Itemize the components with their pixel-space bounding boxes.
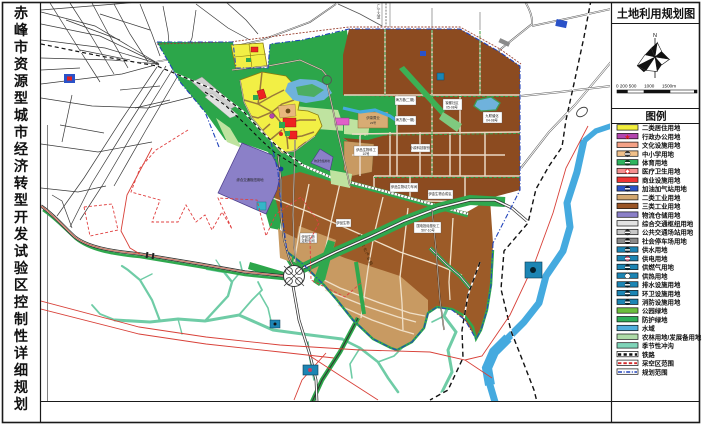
svg-text:供水用地: 供水用地 <box>641 245 668 254</box>
svg-text:广宁大道: 广宁大道 <box>376 3 381 19</box>
svg-text:公共交通场站用地: 公共交通场站用地 <box>642 228 694 237</box>
svg-text:土地利用规划图: 土地利用规划图 <box>617 7 695 21</box>
svg-text:海方基(二期): 海方基(二期) <box>396 97 415 102</box>
svg-text:淀粉车间: 淀粉车间 <box>301 238 314 243</box>
svg-text:社会停车场用地: 社会停车场用地 <box>641 237 687 246</box>
svg-text:季节性冲沟: 季节性冲沟 <box>641 341 674 350</box>
svg-text:三类工业用地: 三类工业用地 <box>642 202 681 211</box>
svg-text:伊品生物: 伊品生物 <box>336 220 350 225</box>
svg-text:图例: 图例 <box>646 110 667 123</box>
svg-text:物流仓储用地: 物流仓储用地 <box>314 159 330 163</box>
svg-text:消防设施用地: 消防设施用地 <box>642 298 681 307</box>
svg-text:0 200 500 1000 1500: 0 200 500 1000 1500m <box>616 84 676 89</box>
svg-text:供热用地: 供热用地 <box>641 271 668 280</box>
svg-text:排水设施用地: 排水设施用地 <box>642 280 681 289</box>
svg-text:伊品生物动力车间: 伊品生物动力车间 <box>391 184 417 189</box>
svg-text:中小学用地: 中小学用地 <box>642 149 675 158</box>
svg-text:镍都社区: 镍都社区 <box>445 100 459 105</box>
svg-text:规划范围: 规划范围 <box>642 367 668 376</box>
svg-text:商业设施用地: 商业设施用地 <box>642 175 681 184</box>
svg-text:防护绿地: 防护绿地 <box>642 315 668 324</box>
svg-text:507-10号: 507-10号 <box>421 228 435 233</box>
svg-text:伊金生物合成氨: 伊金生物合成氨 <box>428 191 452 196</box>
svg-text:行政办公用地: 行政办公用地 <box>641 132 681 141</box>
svg-text:体育用地: 体育用地 <box>642 158 668 167</box>
svg-text:综合交通枢纽用地: 综合交通枢纽用地 <box>642 219 694 228</box>
svg-text:二类工业用地: 二类工业用地 <box>642 193 681 202</box>
svg-text:采空区范围: 采空区范围 <box>641 359 675 368</box>
svg-text:二类居住用地: 二类居住用地 <box>642 123 681 132</box>
svg-text:铁路: 铁路 <box>642 350 655 359</box>
svg-text:水域: 水域 <box>642 324 655 333</box>
svg-text:加油加气站用地: 加油加气站用地 <box>641 184 687 193</box>
svg-text:公园绿地: 公园绿地 <box>642 306 668 315</box>
svg-text:综合交通枢纽用地: 综合交通枢纽用地 <box>236 177 264 182</box>
svg-text:环卫设施用地: 环卫设施用地 <box>642 289 681 298</box>
svg-text:供电用地: 供电用地 <box>641 254 668 263</box>
svg-text:供燃气用地: 供燃气用地 <box>641 263 675 272</box>
svg-text:海方基(一期): 海方基(一期) <box>396 117 415 122</box>
svg-text:物流仓储用地: 物流仓储用地 <box>642 210 681 219</box>
svg-text:04-08号: 04-08号 <box>486 118 498 123</box>
svg-text:医疗卫生用地: 医疗卫生用地 <box>642 167 681 176</box>
svg-text:文化设施用地: 文化设施用地 <box>642 141 681 150</box>
svg-text:伊康置业: 伊康置业 <box>366 115 380 120</box>
svg-text:农林用地/发展备用地: 农林用地/发展备用地 <box>641 332 702 341</box>
svg-text:★: ★ <box>625 134 631 141</box>
svg-text:23号: 23号 <box>370 120 376 125</box>
svg-text:05-08号: 05-08号 <box>446 105 458 110</box>
svg-text:国电投硅基化工: 国电投硅基化工 <box>416 223 440 228</box>
svg-text:N: N <box>653 33 657 39</box>
svg-text:小原科技服份: 小原科技服份 <box>410 145 430 150</box>
svg-text:九联催化: 九联催化 <box>485 113 499 118</box>
svg-text:10号: 10号 <box>363 151 371 156</box>
